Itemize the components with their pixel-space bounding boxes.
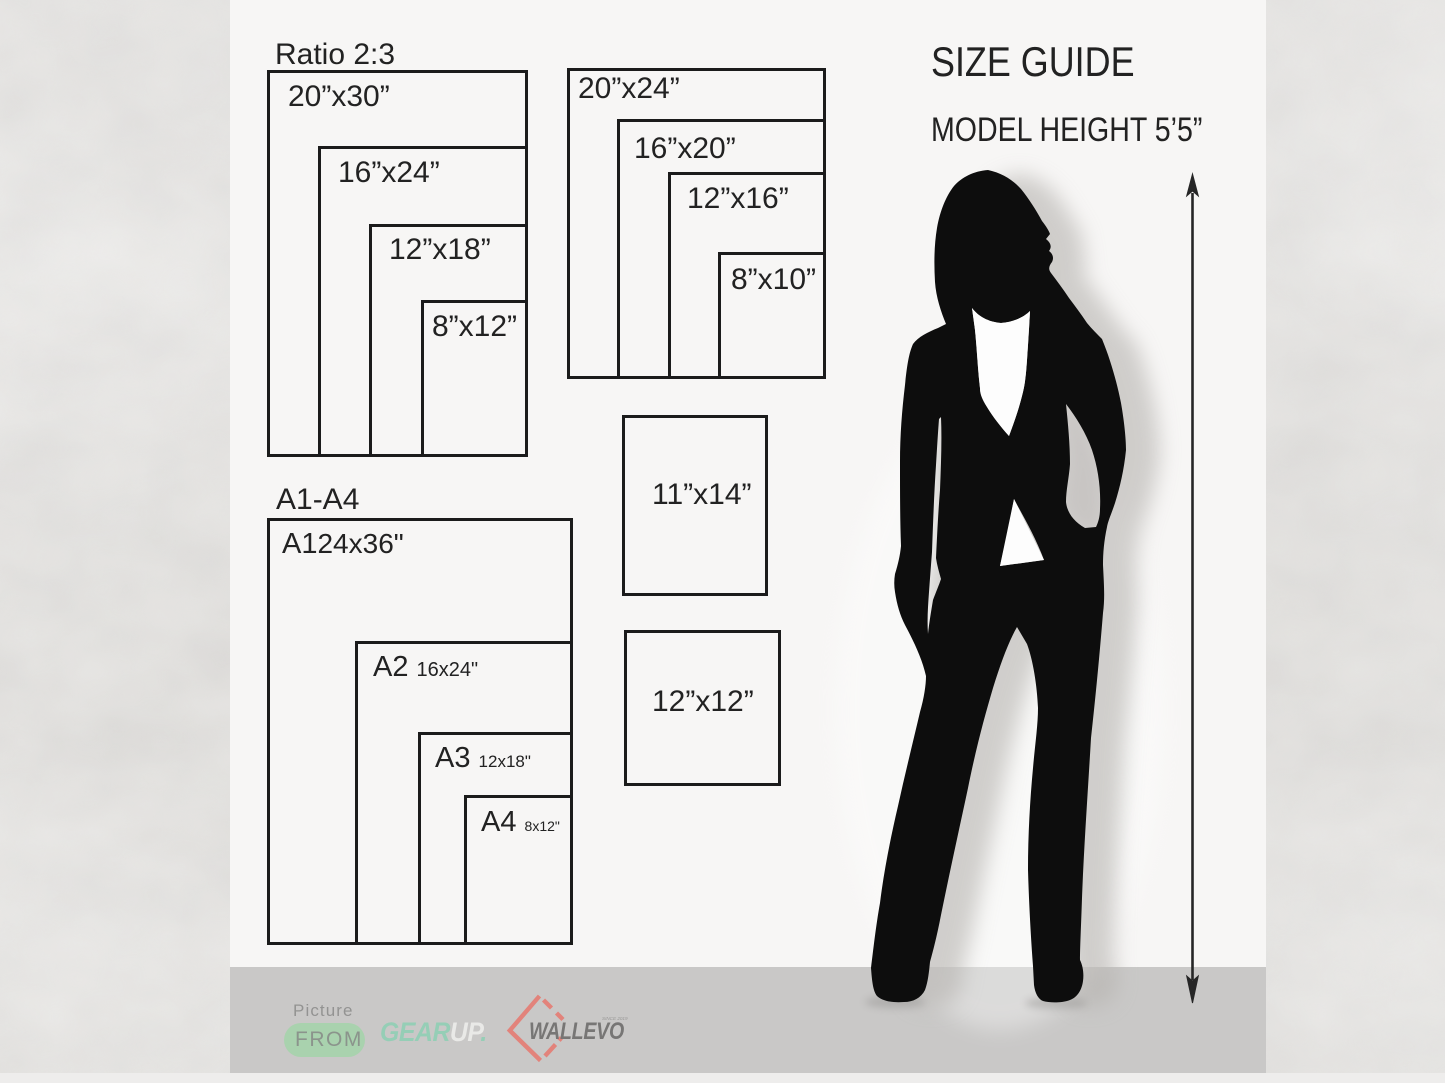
svg-text:WALLEVO: WALLEVO: [529, 1017, 624, 1045]
